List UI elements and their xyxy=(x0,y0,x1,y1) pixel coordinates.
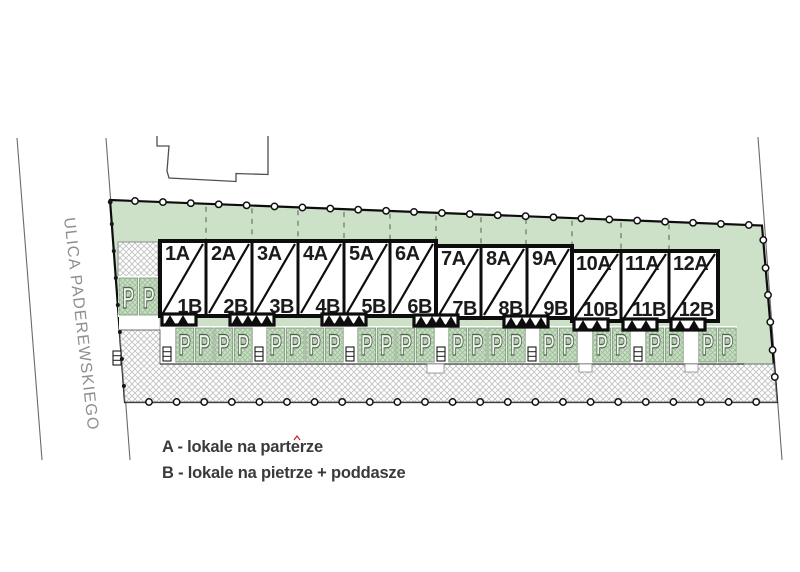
parking-stall-p: P xyxy=(721,329,733,362)
survey-point xyxy=(606,216,612,222)
parking-stall-p: P xyxy=(179,329,191,362)
parking-stall-p: P xyxy=(237,329,249,362)
parking-stall-p: P xyxy=(218,329,230,362)
survey-point xyxy=(439,210,445,216)
survey-point-corner xyxy=(108,200,113,205)
survey-point-filled xyxy=(122,384,126,388)
parking-stall-p: P xyxy=(198,329,210,362)
survey-point xyxy=(216,201,222,207)
parking-stall-p: P xyxy=(328,329,340,362)
survey-point-filled xyxy=(120,357,124,361)
parking-stall-p: P xyxy=(491,329,503,362)
parking-stall-p: P xyxy=(543,329,555,362)
survey-point xyxy=(201,399,207,405)
left-walk-gap xyxy=(119,317,159,330)
entry-paved-area xyxy=(118,242,158,277)
gate-icon xyxy=(634,347,642,361)
site-plan-image: ULICA PADEREWSKIEGO PPPPPPPPPPPPPPPPPPPP… xyxy=(0,0,800,572)
survey-point xyxy=(698,399,704,405)
survey-point xyxy=(271,203,277,209)
site-plan-svg: ULICA PADEREWSKIEGO PPPPPPPPPPPPPPPPPPPP… xyxy=(0,0,800,572)
parking-stall-p: P xyxy=(702,329,714,362)
survey-point-filled xyxy=(114,276,118,280)
survey-point xyxy=(394,399,400,405)
building-block-3: 10A 11A 12A 10B 11B 12B xyxy=(572,251,718,321)
walkway-extension xyxy=(427,364,444,373)
survey-point xyxy=(662,219,668,225)
survey-point xyxy=(229,399,235,405)
survey-point xyxy=(422,399,428,405)
parking-stall-p: P xyxy=(649,329,661,362)
survey-point xyxy=(256,399,262,405)
parking-stall-p: P xyxy=(380,329,392,362)
street-label: ULICA PADEREWSKIEGO xyxy=(60,217,101,432)
survey-point xyxy=(505,399,511,405)
walkway-extension xyxy=(685,364,698,372)
survey-point xyxy=(725,399,731,405)
parking-stall-p: P xyxy=(510,329,522,362)
unit-label: 2A xyxy=(211,243,236,265)
survey-point xyxy=(578,215,584,221)
survey-point xyxy=(769,347,775,353)
unit-label: 7A xyxy=(441,248,466,270)
unit-label: 12A xyxy=(673,253,708,275)
street-edge-left xyxy=(17,138,42,460)
survey-point-filled xyxy=(112,249,116,253)
gate-icon xyxy=(163,347,171,361)
survey-point xyxy=(299,204,305,210)
survey-point xyxy=(772,374,778,380)
unit-label: 10A xyxy=(576,253,611,275)
survey-point xyxy=(767,319,773,325)
parking-stall-p: P xyxy=(400,329,412,362)
survey-point xyxy=(311,399,317,405)
walkway-extension xyxy=(579,364,592,372)
parking-stall-p: P xyxy=(452,329,464,362)
gate-icon xyxy=(255,347,263,361)
parking-stall-p: P xyxy=(562,329,574,362)
survey-point xyxy=(355,207,361,213)
survey-point-filled xyxy=(116,303,120,307)
neighbor-building-outline xyxy=(157,136,268,182)
legend-line-a: A - lokale na parterze xyxy=(162,438,323,456)
survey-point-filled xyxy=(118,330,122,334)
unit-label: 9A xyxy=(532,248,557,270)
parking-stall-p: P xyxy=(309,329,321,362)
survey-point xyxy=(383,208,389,214)
survey-point xyxy=(327,205,333,211)
survey-point xyxy=(670,399,676,405)
survey-point xyxy=(160,199,166,205)
survey-point xyxy=(173,399,179,405)
gate-icon xyxy=(346,347,354,361)
parking-stall-p: P xyxy=(143,282,155,315)
parking-stall-p: P xyxy=(668,329,680,362)
survey-point xyxy=(132,198,138,204)
survey-point xyxy=(690,220,696,226)
survey-point xyxy=(718,221,724,227)
survey-point xyxy=(532,399,538,405)
building-block-2: 7A 8A 9A 7B 8B 9B xyxy=(436,246,572,320)
survey-point xyxy=(550,214,556,220)
unit-label: 5A xyxy=(349,243,374,265)
survey-point xyxy=(615,399,621,405)
unit-label: 1A xyxy=(165,243,190,265)
survey-point xyxy=(560,399,566,405)
parking-stall-p: P xyxy=(270,329,282,362)
survey-point xyxy=(765,292,771,298)
survey-point xyxy=(477,399,483,405)
building-block-1: 1A 2A 3A 4A 5A 6A 1B 2B 3B 4B 5B 6B xyxy=(160,241,436,318)
legend-line-b: B - lokale na pietrze + poddasze xyxy=(162,464,405,482)
survey-point xyxy=(643,399,649,405)
survey-point xyxy=(587,399,593,405)
unit-label: 11A xyxy=(625,253,659,275)
survey-point xyxy=(411,209,417,215)
unit-label: 4A xyxy=(303,243,328,265)
parking-stall-p: P xyxy=(471,329,483,362)
parking-stall-p: P xyxy=(419,329,431,362)
gate-icon xyxy=(113,351,121,365)
survey-point xyxy=(467,211,473,217)
unit-label: 3A xyxy=(257,243,282,265)
parking-stall-p: P xyxy=(289,329,301,362)
survey-point xyxy=(762,265,768,271)
survey-point xyxy=(339,399,345,405)
legend: A - lokale na parterze B - lokale na pie… xyxy=(162,438,405,482)
gate-icon xyxy=(437,347,445,361)
survey-point xyxy=(522,213,528,219)
unit-label: 6A xyxy=(395,243,420,265)
gate-icon xyxy=(528,347,536,361)
survey-point xyxy=(634,217,640,223)
survey-point xyxy=(284,399,290,405)
survey-point xyxy=(146,399,152,405)
survey-point xyxy=(449,399,455,405)
parking-stall-p: P xyxy=(361,329,373,362)
parking-stall-p: P xyxy=(615,329,627,362)
survey-point xyxy=(760,237,766,243)
parking-stall-p: P xyxy=(596,329,608,362)
survey-point xyxy=(243,202,249,208)
unit-label: 8A xyxy=(486,248,511,270)
parking-stall-p: P xyxy=(122,282,134,315)
survey-point xyxy=(367,399,373,405)
survey-point-filled xyxy=(110,222,114,226)
survey-point xyxy=(746,222,752,228)
survey-point xyxy=(753,399,759,405)
survey-point xyxy=(188,200,194,206)
survey-point xyxy=(495,212,501,218)
